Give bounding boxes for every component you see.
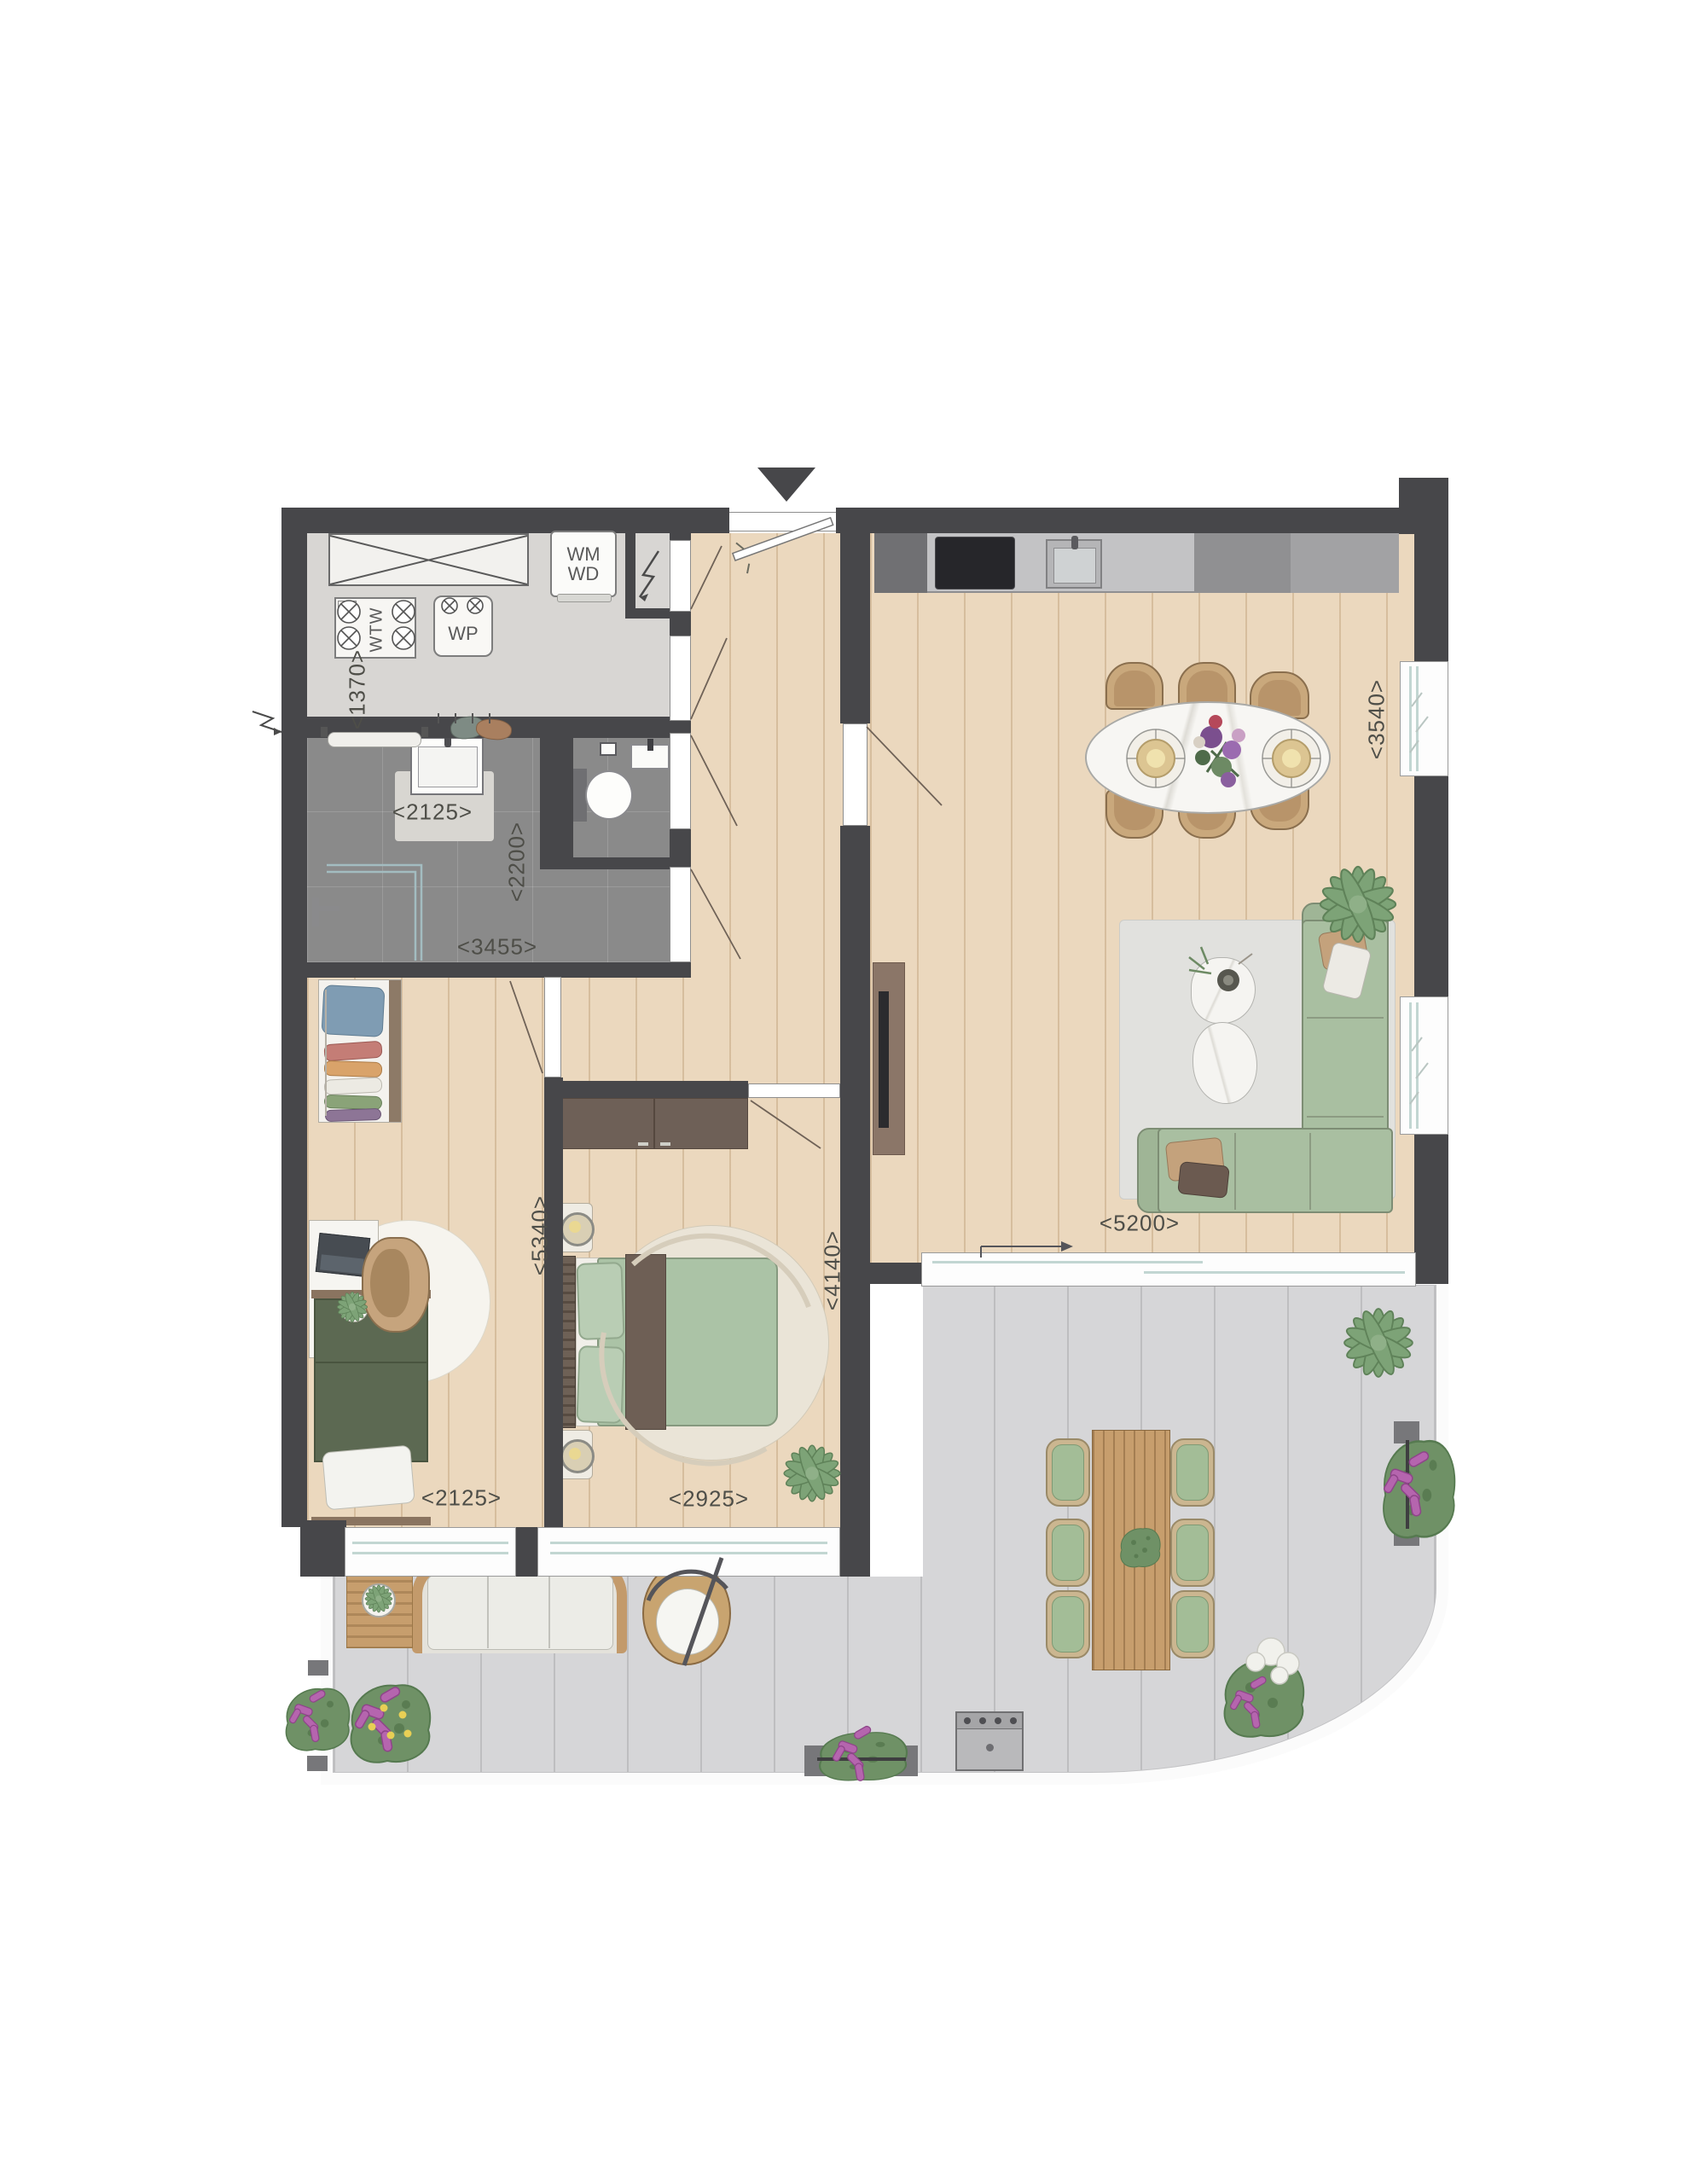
wall-office-east — [544, 1077, 563, 1527]
heat-pump-unit: WP — [433, 595, 493, 657]
dim-storage-width: <1370> — [345, 649, 371, 729]
daybed-pillow — [322, 1445, 415, 1511]
bed-pillow — [576, 1345, 624, 1424]
bedroom-door — [748, 1083, 840, 1098]
window-bedroom — [537, 1527, 840, 1577]
kitchen-sink — [1046, 539, 1102, 589]
sliding-door-terrace — [921, 1252, 1416, 1287]
toilet-paper-holder — [600, 742, 617, 756]
wc-door — [670, 733, 691, 829]
utility-door — [670, 636, 691, 721]
kitchen-tall-cabinet — [874, 533, 927, 593]
wall-corner-block — [1399, 478, 1448, 534]
dim-bedroom1-length: <4140> — [820, 1230, 846, 1310]
wall-hall-b — [670, 612, 691, 636]
wall-hall-e — [670, 962, 691, 978]
planter-pot — [308, 1660, 328, 1676]
sofa-pillow — [1177, 1161, 1230, 1199]
wardrobe-clothes — [325, 1108, 381, 1122]
coffee-table — [1192, 1022, 1257, 1104]
tv-cabinet — [873, 962, 905, 1155]
planter-pot — [307, 1756, 328, 1771]
dim-bedroom2-length: <5340> — [527, 1195, 554, 1275]
wall-living-west-lower — [840, 826, 870, 1577]
wall-meter-left — [625, 533, 635, 619]
wall-living-west-upper — [840, 533, 870, 723]
washer-label-wm: WM — [566, 544, 600, 564]
wall-top-left — [281, 508, 729, 533]
planter-pot — [804, 1745, 828, 1776]
kitchen-cabinet-end — [1291, 533, 1399, 593]
dim-living-depth: <3540> — [1364, 679, 1390, 759]
dim-bath-vanity: <2125> — [392, 799, 473, 826]
planter-pot — [1394, 1524, 1419, 1546]
wall-wc-south — [540, 857, 670, 869]
office-door — [544, 977, 561, 1077]
wall-right-1 — [1414, 533, 1448, 663]
towel-rail — [328, 732, 421, 747]
office-chair — [362, 1237, 430, 1333]
wall-right-2 — [1414, 775, 1448, 998]
bed-pillow — [576, 1262, 624, 1340]
bed-duvet — [597, 1258, 778, 1426]
kitchen-cabinet-dark — [1194, 533, 1291, 593]
terrace-chair — [1046, 1590, 1090, 1658]
wall-meter-bottom — [625, 608, 670, 619]
planter-pot — [894, 1745, 918, 1776]
floor-plan: WM WD WTW WP — [0, 0, 1706, 2184]
cooktop — [935, 537, 1015, 590]
bbq-grill — [955, 1711, 1024, 1771]
wardrobe-clothes — [324, 1077, 383, 1095]
bathroom-vanity — [410, 737, 484, 795]
wall-wc-left — [540, 738, 573, 857]
terrace-chair — [1170, 1519, 1215, 1587]
wardrobe-clothes — [324, 1060, 383, 1077]
faucet-icon — [647, 739, 653, 751]
wp-label: WP — [448, 623, 478, 645]
wall-left-bottom-block — [300, 1520, 346, 1577]
wall-hall-c — [670, 721, 691, 733]
wall-window-mullion — [516, 1527, 537, 1577]
wall-hall-d — [670, 829, 691, 867]
meter-cupboard-door — [670, 540, 691, 612]
tv-screen — [879, 991, 889, 1128]
window-living — [1400, 996, 1448, 1135]
dim-bathroom-depth: <2200> — [504, 822, 531, 902]
outdoor-table-pot — [362, 1583, 396, 1618]
entrance-threshold — [729, 512, 836, 531]
dim-bedroom1-width: <2925> — [669, 1486, 749, 1513]
wtw-label: WTW — [368, 607, 387, 653]
hanging-egg-chair — [642, 1561, 731, 1665]
terrace-dining-table — [1092, 1430, 1170, 1670]
terrace-chair — [1046, 1519, 1090, 1587]
terrace-chair — [1170, 1590, 1215, 1658]
terrace-chair — [1046, 1438, 1090, 1507]
terrace-chair — [1170, 1438, 1215, 1507]
wall-top-right — [836, 508, 1416, 533]
sink-basin — [1053, 548, 1096, 584]
wc-sink — [630, 744, 670, 770]
dining-chair — [1105, 662, 1163, 710]
shower-arm-icon — [312, 906, 339, 911]
dim-bedroom2-width: <2125> — [421, 1485, 502, 1512]
living-door — [843, 723, 868, 826]
bedroom-wardrobe — [559, 1098, 748, 1149]
dining-table — [1085, 701, 1331, 814]
planter-pot — [1394, 1421, 1419, 1443]
dim-living-width: <5200> — [1100, 1211, 1180, 1237]
toilet-bowl — [585, 770, 633, 820]
bathroom-door — [670, 867, 691, 962]
entrance-arrow-icon — [757, 468, 815, 502]
wall-left — [281, 508, 307, 1527]
dim-bathroom-width: <3455> — [457, 934, 537, 961]
wall-right-3 — [1414, 1132, 1448, 1284]
wall-bedroom-north — [544, 1081, 748, 1098]
faucet-icon — [1071, 536, 1078, 549]
wardrobe-clothes — [322, 985, 386, 1037]
electric-supply-icon — [252, 712, 281, 735]
wall-living-south-stub — [862, 1263, 921, 1284]
window-dining — [1400, 661, 1448, 776]
window-office — [345, 1527, 516, 1577]
washer-dryer: WM WD — [550, 531, 617, 597]
bed-runner-blanket — [625, 1254, 666, 1430]
washer-label-wd: WD — [568, 564, 600, 584]
shower-head-icon — [312, 897, 319, 926]
wall-bath-south — [307, 962, 670, 978]
shaft-box — [328, 533, 529, 586]
